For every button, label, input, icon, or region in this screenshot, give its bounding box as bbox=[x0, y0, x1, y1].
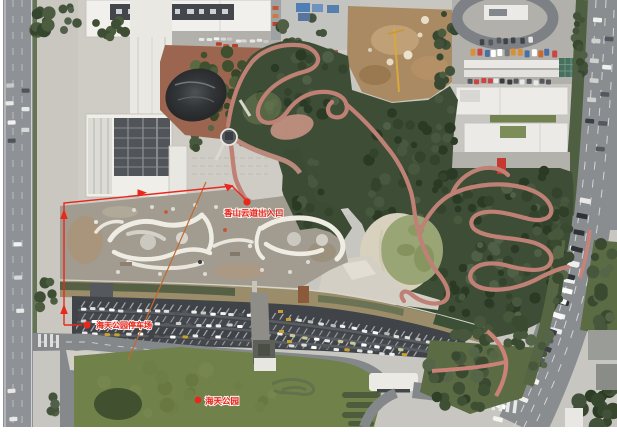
svg-text:香山云道出入口: 香山云道出入口 bbox=[223, 208, 284, 218]
svg-text:海天公园停车场: 海天公园停车场 bbox=[96, 320, 152, 330]
svg-text:海天公园: 海天公园 bbox=[205, 396, 239, 406]
